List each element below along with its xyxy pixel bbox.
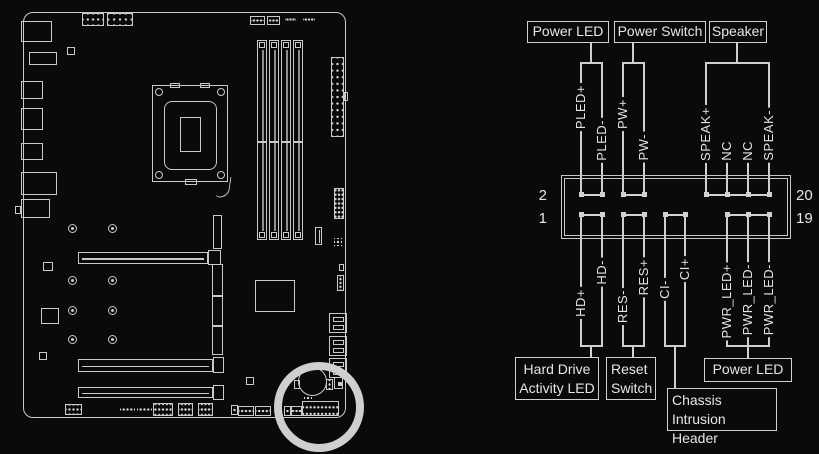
header-pin xyxy=(663,212,668,217)
pin-2-label: 2 xyxy=(531,187,547,204)
pin-label-speak-minus: SPEAK- xyxy=(761,108,776,163)
pin-label-res-minus: RES- xyxy=(615,288,630,325)
standoff xyxy=(68,224,77,233)
dimm-latch xyxy=(283,232,289,238)
wire xyxy=(623,194,644,196)
power-led-bottom-label: Power LED xyxy=(713,361,784,377)
pin-label-speak-plus: SPEAK+ xyxy=(698,105,713,163)
dimm-latch xyxy=(271,42,277,48)
cpu-power-connector xyxy=(82,13,104,26)
socket-screw xyxy=(155,88,163,96)
fan-header xyxy=(238,406,254,416)
chassis-intrusion-box: Chassis Intrusion Header xyxy=(667,388,777,431)
header-pin xyxy=(746,192,751,197)
mounting-pad xyxy=(39,352,47,360)
standoff xyxy=(108,335,117,344)
socket-tab xyxy=(185,179,197,185)
header-pin xyxy=(642,212,647,217)
chipset xyxy=(255,280,295,312)
header-pin xyxy=(683,212,688,217)
com-header xyxy=(153,403,173,416)
fan-header xyxy=(267,16,280,25)
power-led-bottom-box: Power LED xyxy=(704,358,792,382)
pcie-latch xyxy=(213,385,224,400)
dimm-notch xyxy=(282,141,291,143)
pin-1-label: 1 xyxy=(531,210,547,227)
header-pin xyxy=(704,192,709,197)
m2-slot-rail xyxy=(212,264,223,355)
pcie-latch xyxy=(208,250,221,265)
speaker-label: Speaker xyxy=(712,23,764,39)
speaker-box: Speaker xyxy=(709,21,767,43)
header-pin xyxy=(621,212,626,217)
power-switch-box: Power Switch xyxy=(614,21,706,43)
power-led-top-label: Power LED xyxy=(533,23,604,39)
wire xyxy=(665,214,685,216)
pin-label-hd-plus: HD+ xyxy=(573,287,588,319)
pcie-x16-slot xyxy=(78,252,208,264)
pcie-slot xyxy=(78,359,213,372)
pcie-slot xyxy=(78,387,213,398)
io-port xyxy=(15,206,21,214)
pin-label-nc-1: NC xyxy=(719,139,734,163)
pin-label-pwr-led-minus1: PWR_LED- xyxy=(740,262,755,337)
cpu-socket-center xyxy=(180,117,201,152)
pin-label-ci-minus: CI- xyxy=(657,278,672,301)
cpu-power-connector xyxy=(107,13,133,26)
pin-label-pwr-led-plus: PWR_LED+ xyxy=(719,262,734,340)
chassis-intrusion-label-line1: Chassis Intrusion xyxy=(672,391,776,429)
pin-label-pled-plus: PLED+ xyxy=(573,83,588,131)
io-port xyxy=(29,52,57,65)
usb2-header xyxy=(178,403,193,416)
m2-divider xyxy=(213,295,222,297)
reset-switch-label-line2: Switch xyxy=(611,379,655,398)
socket-tab xyxy=(200,83,210,88)
io-port xyxy=(21,199,50,218)
front-panel-header-figure: Power LED Power Switch Speaker PLED+ PLE… xyxy=(0,0,819,454)
fan-header xyxy=(337,275,344,291)
wire xyxy=(590,347,592,357)
wire xyxy=(623,214,644,216)
standoff xyxy=(108,224,117,233)
io-port xyxy=(21,108,43,130)
power-led-top-box: Power LED xyxy=(527,21,609,43)
pin-label-hd-minus: HD- xyxy=(594,258,609,287)
small-header xyxy=(339,264,344,271)
pin-header xyxy=(285,17,296,22)
wire xyxy=(632,43,634,63)
dimm-notch xyxy=(270,141,279,143)
wire xyxy=(581,214,602,216)
sata-ports xyxy=(329,336,347,356)
dimm-slot xyxy=(281,40,291,240)
socket-screw xyxy=(155,171,163,179)
audio-header xyxy=(65,404,82,415)
usb3-header xyxy=(334,188,344,219)
dimm-slot xyxy=(257,40,267,240)
pin-header xyxy=(334,238,342,246)
wire xyxy=(736,43,738,63)
pin-19-label: 19 xyxy=(796,210,813,227)
header-pin xyxy=(600,192,605,197)
header-pin xyxy=(725,212,730,217)
wire xyxy=(706,194,769,196)
dimm-latch xyxy=(259,42,265,48)
dimm-slot xyxy=(293,40,303,240)
header-pin xyxy=(642,192,647,197)
pin-label-nc-2: NC xyxy=(740,139,755,163)
highlight-circle xyxy=(274,362,364,452)
header-pin xyxy=(600,212,605,217)
pin-label-res-plus: RES+ xyxy=(636,257,651,297)
fan-header xyxy=(250,16,265,25)
pcie-line xyxy=(82,393,209,395)
standoff xyxy=(68,306,77,315)
small-header xyxy=(231,405,238,415)
pin-header xyxy=(120,407,135,412)
sata-port xyxy=(333,348,344,353)
header-pin xyxy=(746,212,751,217)
m2-divider xyxy=(213,325,222,327)
dimm-slot xyxy=(269,40,279,240)
wire xyxy=(632,347,634,357)
standoff xyxy=(108,306,117,315)
sata-port xyxy=(333,340,344,345)
standoff xyxy=(108,276,117,285)
wire xyxy=(674,347,676,388)
wire xyxy=(581,194,602,196)
pin-label-pled-minus: PLED- xyxy=(594,118,609,163)
m2-connector xyxy=(213,215,222,249)
pin-20-label: 20 xyxy=(796,187,813,204)
mounting-pad xyxy=(43,262,53,271)
dimm-notch xyxy=(258,141,267,143)
mounting-pad xyxy=(246,377,254,385)
io-port xyxy=(67,47,75,55)
pcie-line xyxy=(82,366,209,368)
wire xyxy=(590,43,592,63)
hdd-led-label-line1: Hard Drive xyxy=(516,360,598,379)
socket-tab xyxy=(170,83,180,88)
wire xyxy=(747,347,749,358)
mounting-pad xyxy=(41,308,59,324)
pin-label-ci-plus: CI+ xyxy=(677,256,692,282)
header-pin xyxy=(767,212,772,217)
pin-label-pw-plus: PW+ xyxy=(615,97,630,131)
reset-switch-box: Reset Switch xyxy=(606,357,656,400)
header-pin xyxy=(725,192,730,197)
pin-label-pw-minus: PW- xyxy=(636,132,651,163)
usb-c-line xyxy=(319,230,321,243)
atx-tab xyxy=(344,92,348,101)
atx-24pin-connector xyxy=(331,57,344,137)
header-pin xyxy=(579,192,584,197)
dimm-latch xyxy=(283,42,289,48)
pin-header xyxy=(303,17,315,22)
standoff xyxy=(68,335,77,344)
io-port xyxy=(21,172,57,195)
usb-c-header xyxy=(315,227,322,245)
hdd-activity-led-box: Hard Drive Activity LED xyxy=(515,357,599,400)
dimm-latch xyxy=(259,232,265,238)
socket-screw xyxy=(217,88,225,96)
header-pin xyxy=(767,192,772,197)
fan-header xyxy=(255,406,271,416)
io-port xyxy=(21,21,52,42)
usb2-header xyxy=(198,403,213,416)
standoff xyxy=(68,276,77,285)
pcie-line xyxy=(82,258,204,260)
header-pin xyxy=(579,212,584,217)
chassis-intrusion-label-line2: Header xyxy=(672,429,776,448)
pin-label-pwr-led-minus2: PWR_LED- xyxy=(761,262,776,337)
dimm-latch xyxy=(295,42,301,48)
sata-port xyxy=(333,317,344,322)
sata-ports xyxy=(329,313,347,333)
dimm-notch xyxy=(294,141,303,143)
dimm-latch xyxy=(295,232,301,238)
sata-port xyxy=(333,325,344,330)
hdd-led-label-line2: Activity LED xyxy=(516,379,598,398)
reset-switch-label-line1: Reset xyxy=(611,360,655,379)
dimm-latch xyxy=(271,232,277,238)
pin-header xyxy=(137,407,152,412)
pcie-latch xyxy=(213,357,224,373)
header-pin xyxy=(621,192,626,197)
io-port xyxy=(21,81,43,99)
io-port xyxy=(21,143,43,160)
power-switch-label: Power Switch xyxy=(618,23,703,39)
